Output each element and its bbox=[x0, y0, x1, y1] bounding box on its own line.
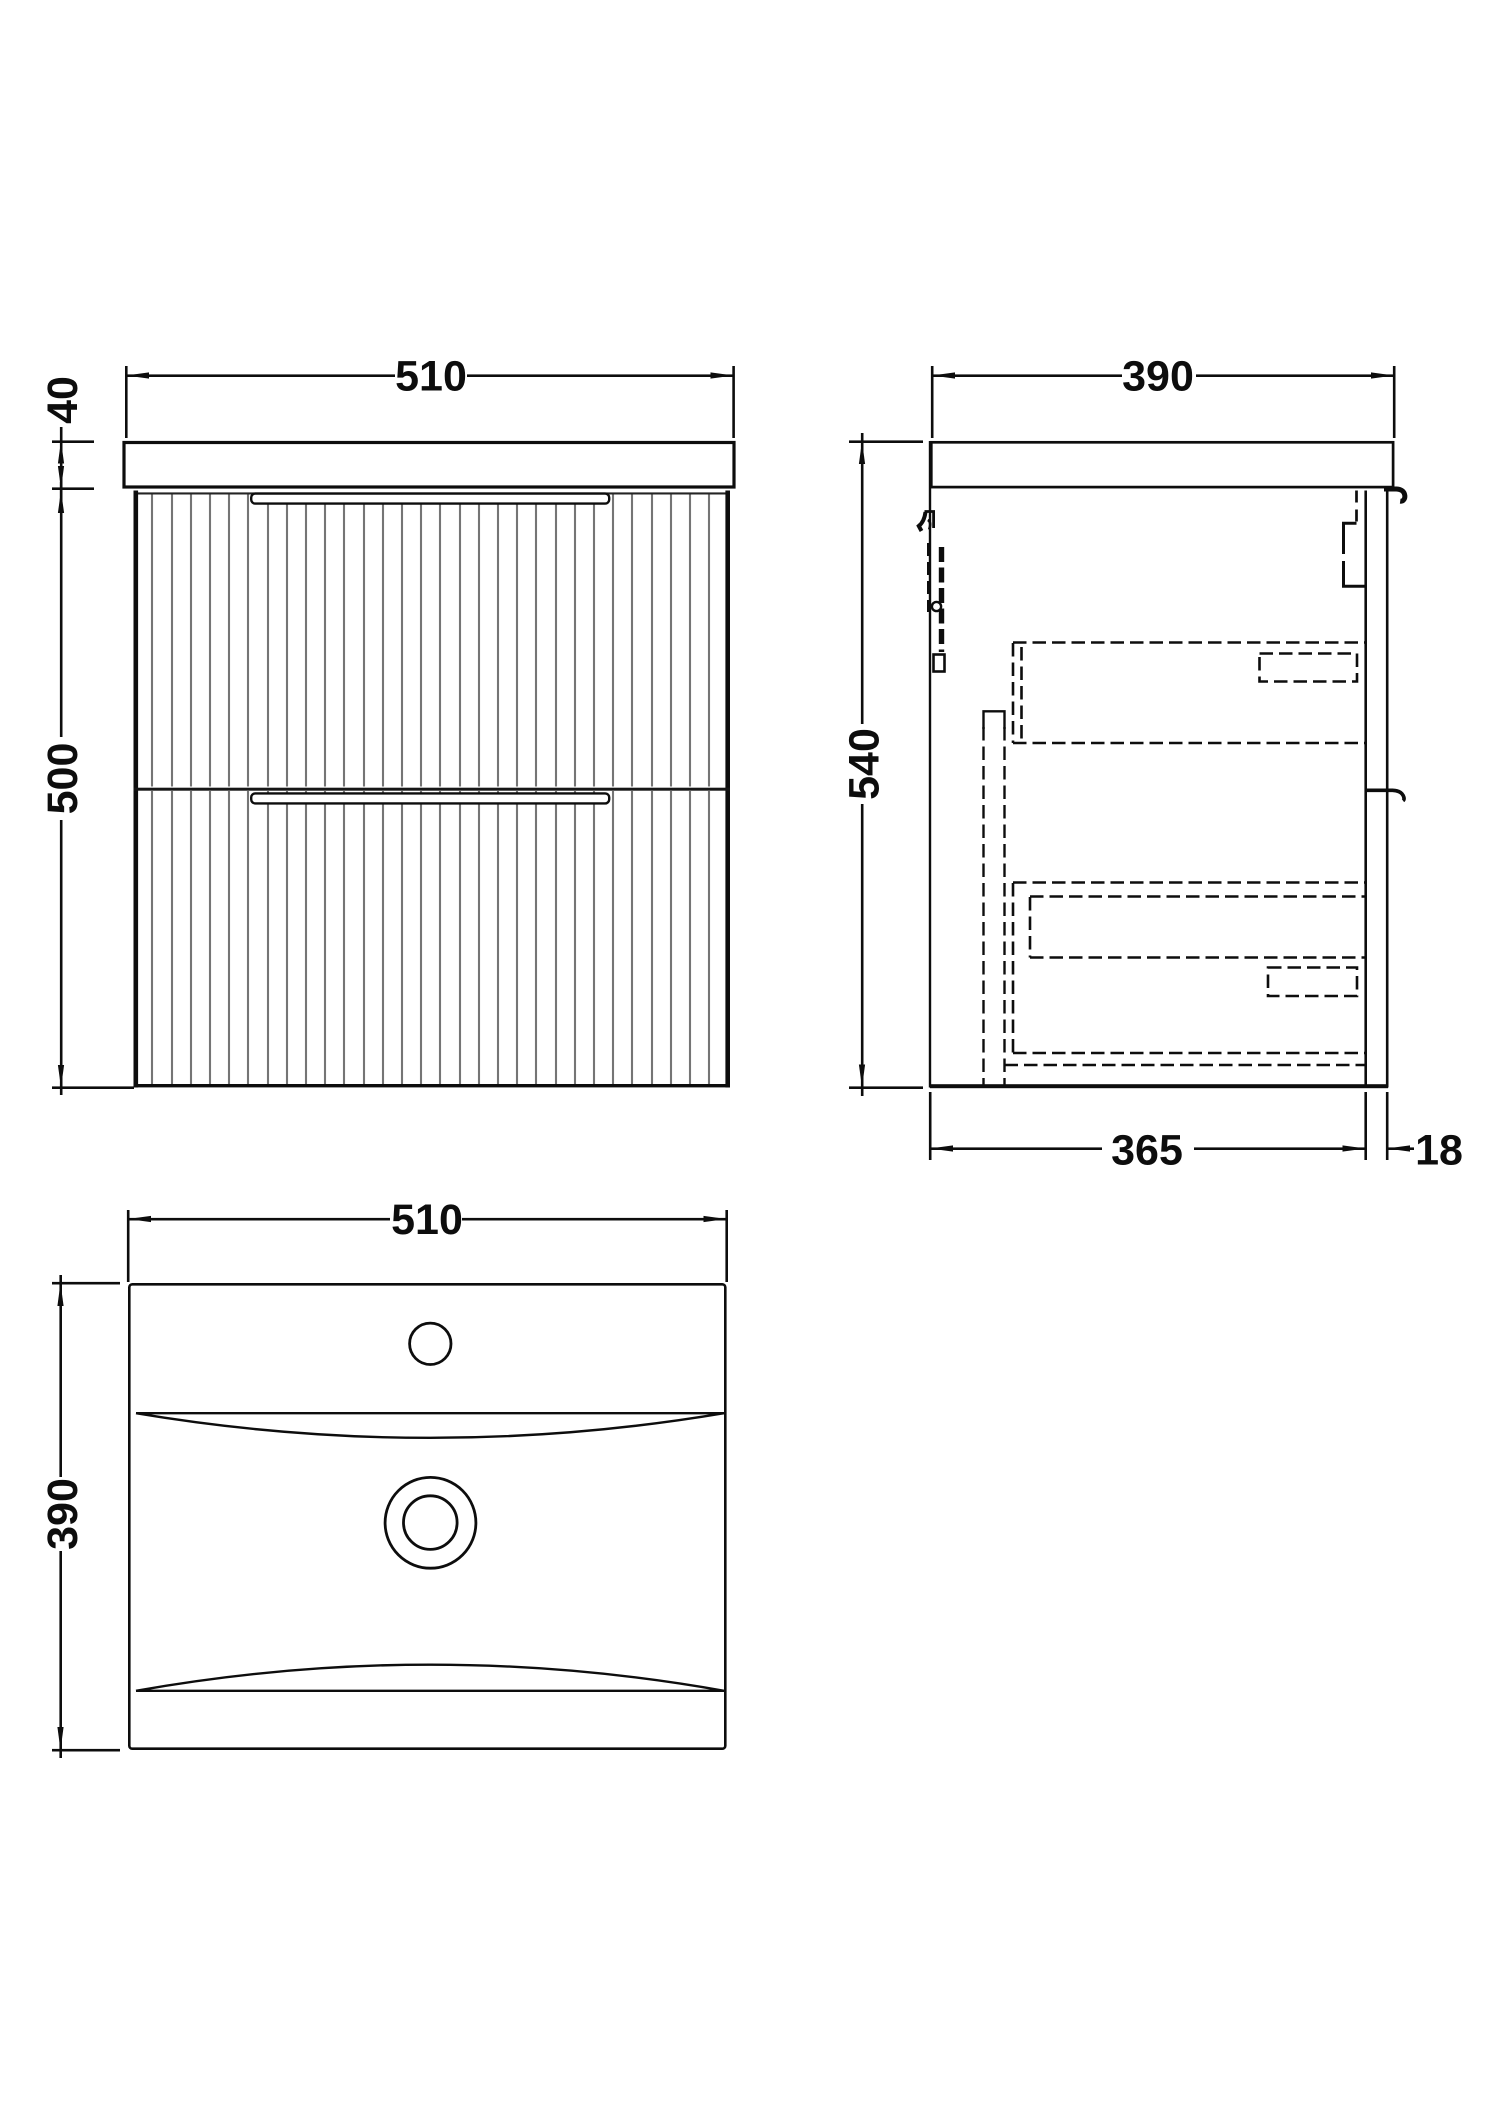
svg-text:390: 390 bbox=[39, 1478, 87, 1550]
svg-text:510: 510 bbox=[395, 353, 467, 401]
svg-text:540: 540 bbox=[841, 728, 889, 800]
svg-text:500: 500 bbox=[39, 743, 87, 815]
svg-text:40: 40 bbox=[39, 376, 87, 424]
svg-text:390: 390 bbox=[1122, 353, 1194, 401]
svg-text:510: 510 bbox=[391, 1196, 463, 1244]
svg-text:365: 365 bbox=[1111, 1127, 1183, 1175]
svg-text:18: 18 bbox=[1415, 1127, 1463, 1175]
